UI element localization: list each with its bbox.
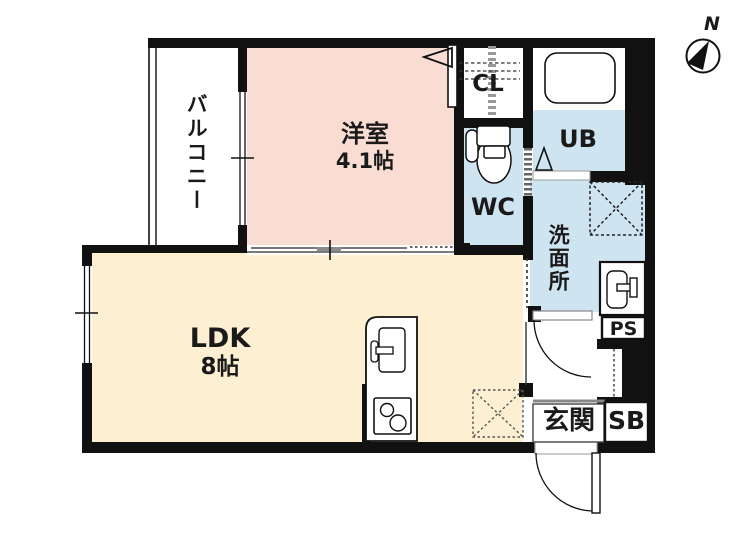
closet-label: CL	[455, 71, 521, 97]
washroom-door-leaf	[533, 311, 592, 320]
ldk-size: 8帖	[140, 354, 300, 380]
pipe-space-label: PS	[602, 319, 645, 341]
wall-shaft-block	[622, 349, 648, 399]
entrance-label: 玄関	[533, 407, 605, 437]
wall-balcony-upper	[238, 47, 247, 92]
floor-plan-drawing	[0, 0, 750, 550]
wall-bottom-right	[597, 442, 655, 453]
wall-stub-hall-bottom	[519, 383, 533, 397]
kitchen-icon	[366, 317, 417, 441]
entrance-door-leaf	[592, 453, 600, 513]
compass-north-label: N	[704, 14, 720, 36]
bedroom-label: 洋室	[285, 121, 445, 149]
ldk-label: LDK	[140, 323, 300, 354]
toilet-label: WC	[460, 194, 526, 222]
bedroom-size: 4.1帖	[285, 149, 445, 173]
washroom-label: 洗面所	[546, 211, 570, 306]
wall-balcony-lower	[238, 225, 247, 245]
wall-corner-stub	[455, 243, 470, 255]
entrance-threshold	[535, 441, 597, 454]
bath-door-opening	[533, 171, 590, 180]
ldk-window	[82, 266, 92, 363]
wall-spine-upper	[523, 38, 533, 148]
washroom-door-arc	[534, 320, 591, 377]
bath-label: UB	[545, 126, 611, 154]
basin-icon	[600, 262, 645, 315]
wall-under-bath	[590, 171, 648, 182]
bedroom-ldk-partition	[247, 245, 454, 255]
floor-plan: バルコニー 洋室 4.1帖 CL UB WC 洗面所 LDK 8帖 PS 玄関 …	[0, 0, 750, 550]
north-compass-icon	[687, 40, 720, 73]
wall-top	[148, 38, 655, 48]
wall-ldk-top	[82, 245, 247, 253]
bathtub-icon	[545, 53, 615, 103]
balcony-label: バルコニー	[184, 80, 208, 225]
wall-bottom-left	[82, 442, 535, 453]
shoe-box-label: SB	[605, 407, 648, 436]
entrance-door-arc	[536, 453, 592, 511]
